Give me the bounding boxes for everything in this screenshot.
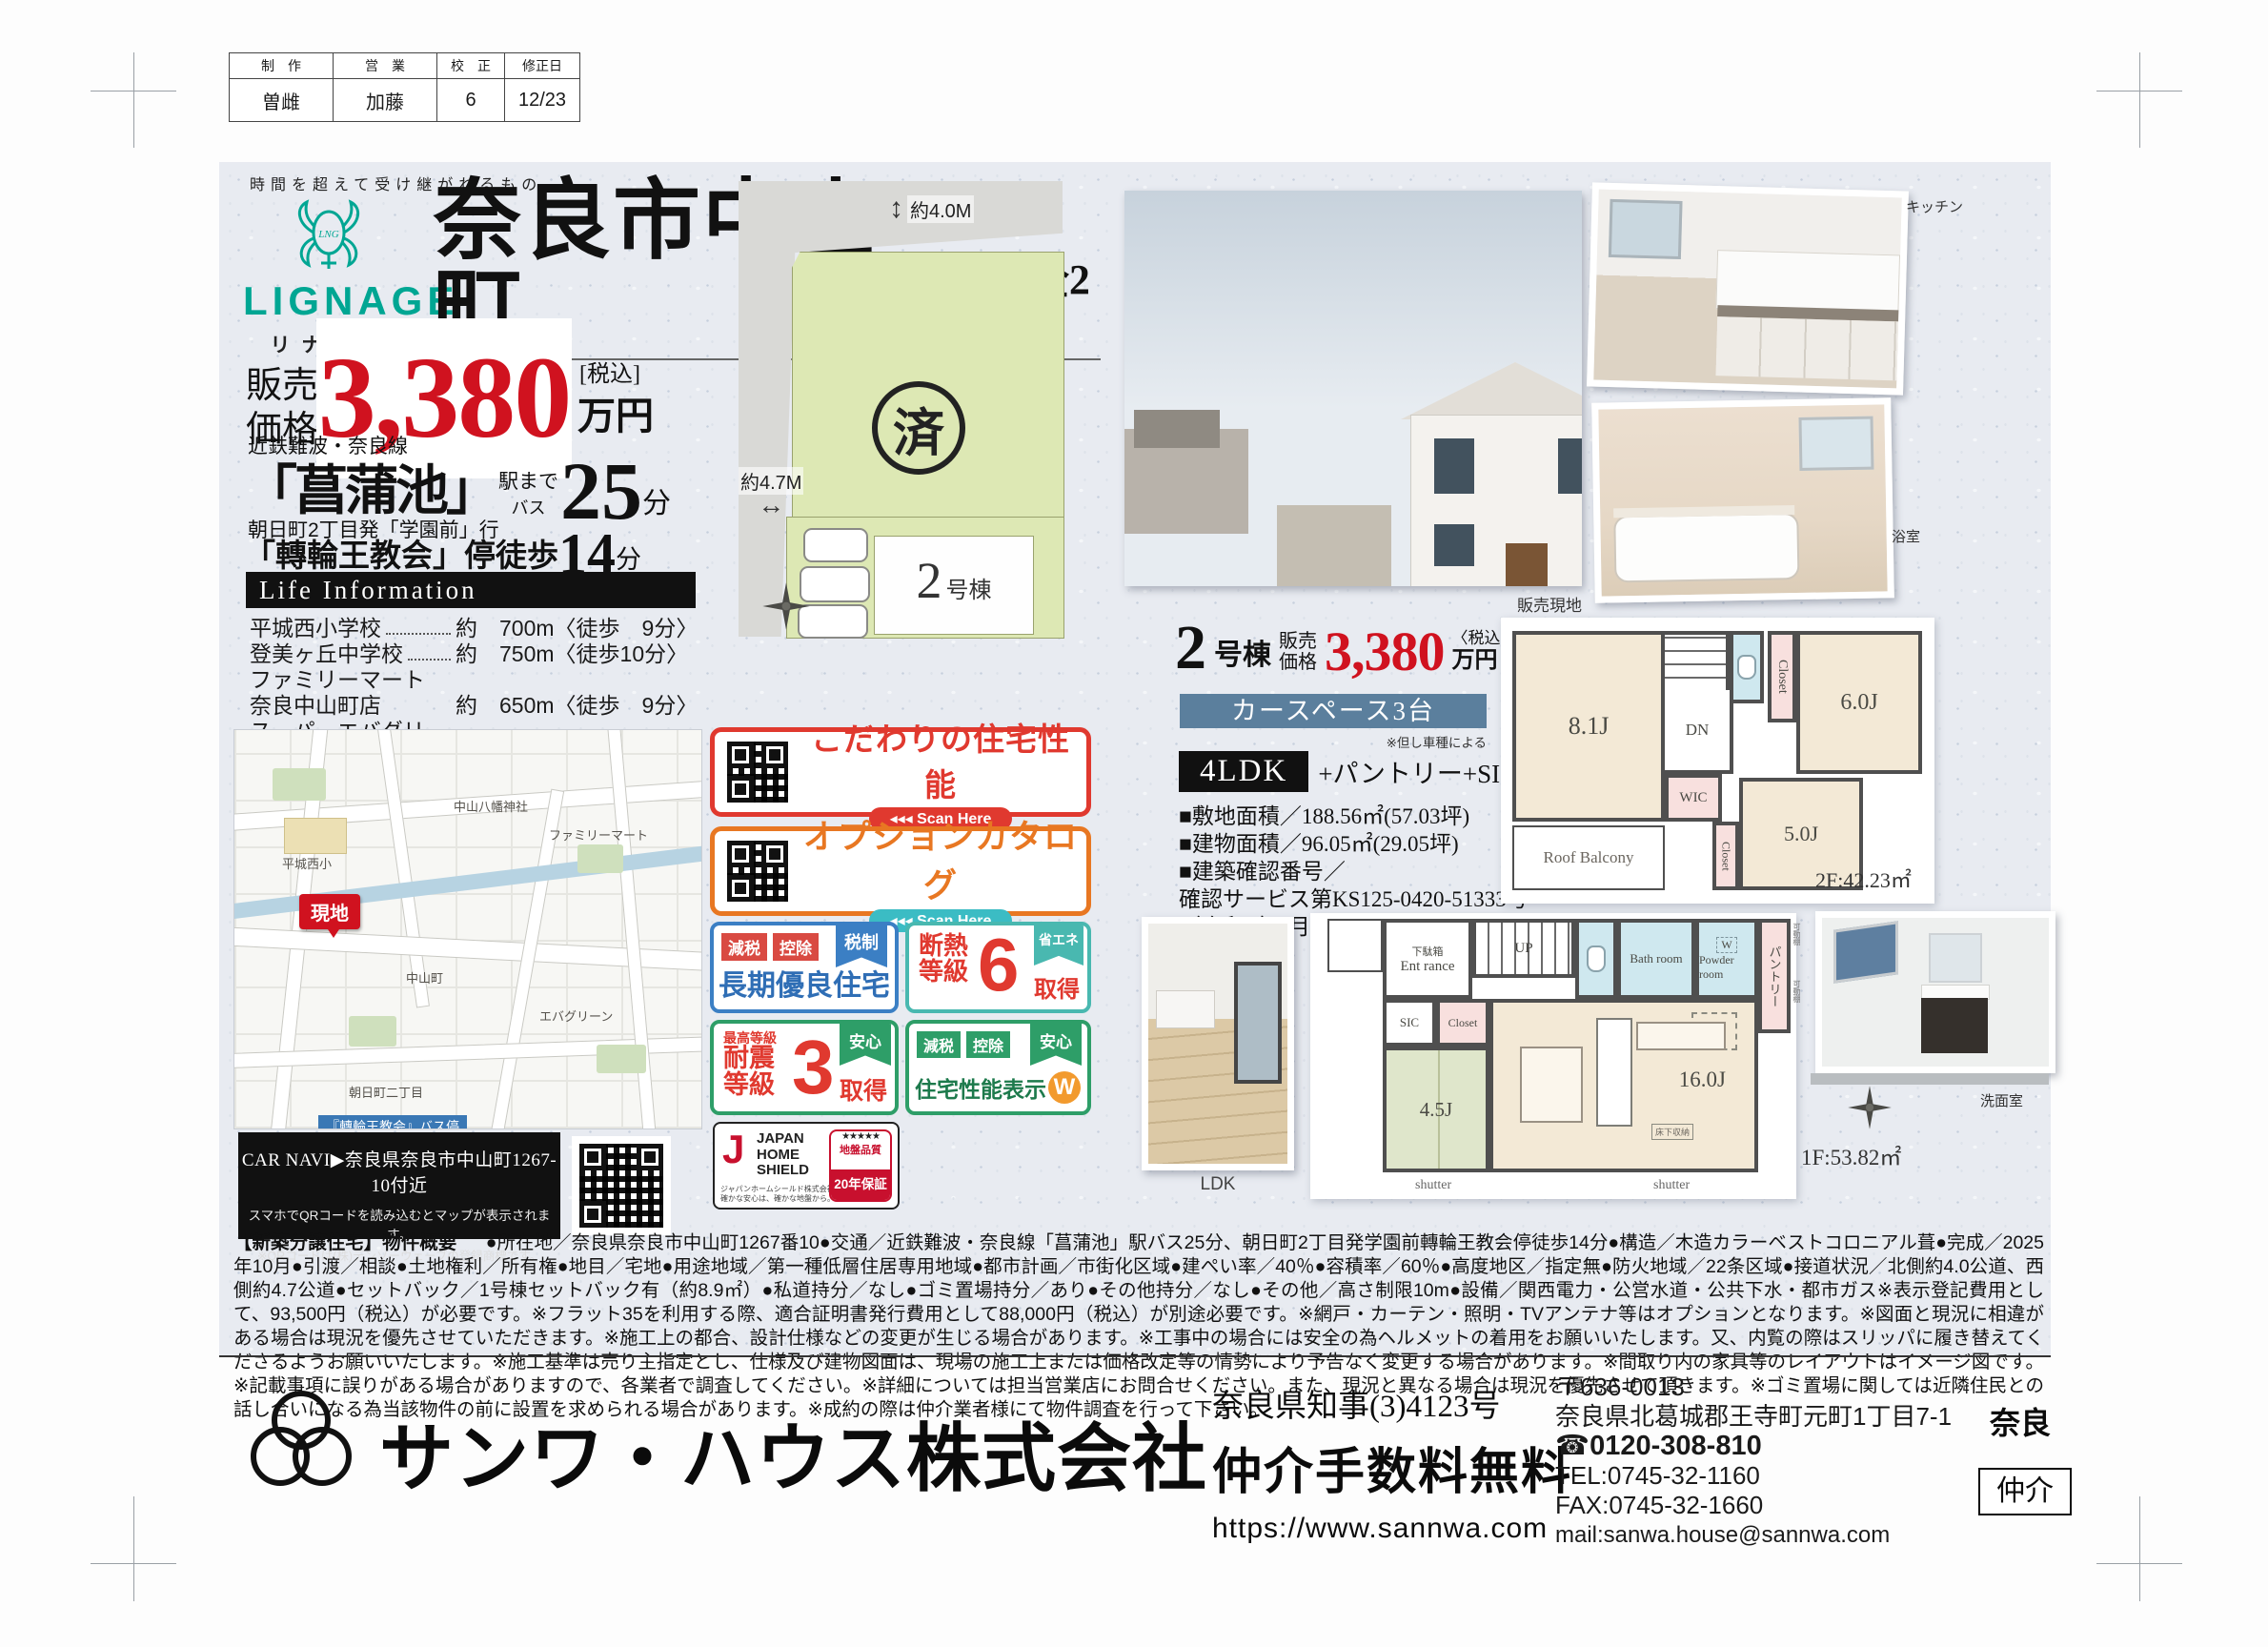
pantry: パントリー (1758, 919, 1791, 1033)
company-name: サンワ・ハウス株式会社 (379, 1399, 1207, 1506)
map-label: 中山八幡神社 (454, 797, 528, 815)
price-unit: 万円 (577, 385, 654, 440)
room-6-0j: 6.0J (1796, 631, 1922, 774)
map-park (597, 1045, 646, 1073)
map-label: ファミリーマート (549, 825, 648, 844)
svg-text:LNG: LNG (317, 229, 338, 240)
sold-mark: 済 (872, 381, 965, 475)
car-icon (803, 528, 868, 562)
dim-top: ↕ 約4.0M (889, 193, 974, 225)
floor-plan-1f: 下駄箱 Ent rance UP Bath room W Powder room… (1310, 913, 1796, 1199)
floor-storage: 床下収納 (1651, 1124, 1693, 1140)
area-1f: 1F:53.82㎡ (1801, 1139, 1901, 1171)
kitchen-counter (1596, 1018, 1632, 1127)
proof-table: 制 作 営 業 校 正 修正日 曽雌 加藤 6 12/23 (229, 52, 580, 122)
map-road (376, 729, 430, 1008)
room-16-0j-ldk: 16.0J R 床下収納 (1489, 999, 1758, 1172)
badge-seinou-hyoji: 減税 控除 安心 住宅性能表示 W (905, 1020, 1091, 1115)
station-name: 「菖蒲池」 (244, 448, 496, 525)
fax-number: FAX:0745-32-1660 (1555, 1491, 1952, 1520)
flyer-page: 制 作 営 業 校 正 修正日 曽雌 加藤 6 12/23 時間を超えて受け継が… (0, 0, 2268, 1647)
roof-balcony: Roof Balcony (1512, 825, 1665, 890)
qr-code (722, 836, 793, 906)
car-space-banner: カースペース3台 (1180, 694, 1487, 728)
map-label: 中山町 (406, 968, 443, 986)
sofa (1636, 1022, 1726, 1050)
stairs-up: UP (1472, 919, 1575, 978)
washroom-photo (1815, 911, 2055, 1073)
bathtub (1613, 513, 1799, 582)
plan-row: 4LDK +パントリー+SIC (1179, 751, 1517, 792)
proof-value: 12/23 (505, 79, 580, 122)
ldk-photo (1142, 917, 1294, 1170)
plan-type-badge: 4LDK (1179, 751, 1308, 792)
w-mark-icon: W (1048, 1071, 1081, 1104)
access-mode: 駅まで バス (498, 466, 558, 519)
list-item: 登美ヶ丘中学校約 750m〈徒歩10分〉 (250, 641, 696, 667)
proof-value: 加藤 (334, 79, 437, 122)
freedial-number: ☎0120-308-810 (1555, 1432, 1952, 1461)
photo-caption: 販売現地 (1463, 592, 1582, 616)
unit-price-label: 販売 価格 (1279, 631, 1317, 673)
floor-plan-2f: 8.1J DN Closet 6.0J WIC Closet 5.0J Roof… (1501, 618, 1934, 904)
stairs (1661, 631, 1730, 694)
fee-free: 仲介手数料無料 (1212, 1432, 1572, 1503)
unit-number: 2 (1175, 621, 1206, 675)
dining-table (1520, 1047, 1583, 1123)
busstop-minutes-unit: 分 (616, 539, 641, 576)
shutter-label: shutter (1653, 1178, 1690, 1193)
site-marker: 現地 (299, 894, 360, 929)
arrow-vertical-icon: ↕ (889, 193, 903, 225)
proof-header: 校 正 (437, 53, 505, 79)
divider-bar (1811, 1073, 2049, 1085)
map-park (349, 1016, 396, 1047)
qr-banner-performance: こだわりの住宅性能 ◂◂◂ Scan Here (710, 727, 1091, 817)
unit-price-amount: 3,380 (1325, 628, 1445, 675)
shutter-label: shutter (1415, 1178, 1451, 1193)
crop-mark (91, 91, 176, 91)
branch-name: 奈良 (1990, 1399, 2051, 1443)
room-4-5j: 4.5J (1383, 1047, 1489, 1172)
closet-2f-2: Closet (1712, 822, 1739, 890)
dim-left: 約4.7M ↔ (739, 467, 803, 516)
crop-mark (2096, 1563, 2182, 1564)
proof-header: 営 業 (334, 53, 437, 79)
map-label: エバグリーン (539, 1006, 613, 1025)
area-2f: 2F:42.23㎡ (1815, 864, 1912, 894)
proof-value: 6 (437, 79, 505, 122)
shelf-label: 可動棚 (1792, 923, 1802, 945)
qr-banner-title: こだわりの住宅性能 (802, 714, 1079, 805)
japan-home-shield-badge: J JAPAN HOME SHIELD ジャパンホームシールド株式会社 確かな安… (713, 1122, 900, 1210)
license-block: 奈良県知事(3)4123号 仲介手数料無料 https://www.sannwa… (1212, 1380, 1572, 1545)
license-number: 奈良県知事(3)4123号 (1212, 1380, 1572, 1426)
life-info-banner: Life Information (246, 572, 696, 608)
map-qr-code (572, 1136, 671, 1235)
badge-dannetsu-6: 断熱 等級 6 省エネ 取得 (905, 922, 1091, 1013)
list-item: 平城西小学校約 700m〈徒歩 9分〉 (250, 616, 696, 641)
crop-mark (2139, 1496, 2140, 1601)
toilet-2f (1730, 631, 1764, 703)
area-map: 平城西小 中山八幡神社 ファミリーマート エバグリーン 中山町 朝日町二丁目 現… (233, 729, 702, 1129)
lignage-crest-icon: LNG (286, 194, 372, 276)
bath-photo (1591, 397, 1894, 602)
qr-code (722, 737, 793, 807)
closet-1f: Closet (1436, 999, 1489, 1047)
role-badge: 仲介 (1978, 1468, 2072, 1515)
crop-mark (133, 52, 134, 148)
footer-divider (219, 1355, 2051, 1357)
site-plan: 済 2 号棟 ↕ 約4.0M 約4.7M ↔ (739, 181, 1063, 637)
map-park (273, 768, 326, 801)
mail-address: mail:sanwa.house@sannwa.com (1555, 1520, 1952, 1550)
jhs-warranty-seal: ★★★★★ 地盤品質 20年保証 (829, 1129, 892, 1202)
photo-caption: 浴室 (1892, 526, 1920, 546)
closet-2f: Closet (1768, 631, 1796, 722)
busstop-map-label: 『轉輪王教会』バス停 (318, 1115, 467, 1129)
arrow-horizontal-icon: ↔ (739, 495, 803, 516)
proof-value: 曽雌 (230, 79, 334, 122)
badge-choki-yuryo: 減税 控除 税制 長期優良住宅 (710, 922, 899, 1013)
company-address: 奈良県北葛城郡王寺町元町1丁目7-1 (1555, 1402, 1952, 1432)
toilet-1f (1575, 919, 1617, 999)
compass-icon (1847, 1085, 1893, 1130)
kitchen-photo (1587, 182, 1909, 395)
photo-caption: キッチン (1906, 196, 1963, 216)
shelf-label: 可動棚 (1792, 980, 1802, 1003)
contact-block: 〒636-0013 奈良県北葛城郡王寺町元町1丁目7-1 ☎0120-308-8… (1555, 1372, 1952, 1550)
site-marker-pointer (326, 926, 341, 938)
unit2-price-row: 2 号棟 販売 価格 3,380 〈税込〉 万円 (1175, 621, 1517, 675)
car-navi-box: CAR NAVI▶奈良県奈良市中山町1267-10付近 スマホでQRコードを読み… (238, 1132, 560, 1239)
hall-dn: DN (1661, 690, 1733, 774)
proof-header: 修正日 (505, 53, 580, 79)
jhs-j-logo: J (722, 1129, 744, 1169)
access-minutes-unit: 分 (642, 479, 671, 521)
badge-taishin-3: 最高等級 耐震 等級 3 安心 取得 (710, 1020, 899, 1115)
exterior-photo (1124, 191, 1582, 586)
crop-mark (91, 1563, 176, 1564)
crop-mark (133, 1496, 134, 1601)
porch (1327, 919, 1383, 972)
map-label: 朝日町二丁目 (349, 1083, 423, 1101)
entrance: 下駄箱 Ent rance (1383, 919, 1472, 999)
unit-suffix: 号棟 (1214, 631, 1271, 673)
price-tax: [税込] (579, 355, 640, 388)
map-park (577, 844, 623, 873)
photo-caption: 洗面室 (1980, 1090, 2023, 1110)
access-minutes: 25 (560, 457, 642, 525)
bath-room: Bath room (1617, 919, 1695, 999)
plan-plus: +パントリー+SIC (1318, 753, 1517, 790)
access-station-row: 「菖蒲池」 駅まで バス 25 分 (244, 448, 671, 525)
room-8-1j: 8.1J (1512, 631, 1665, 822)
company-url: https://www.sannwa.com (1212, 1513, 1572, 1545)
crop-mark (2096, 91, 2182, 91)
car-navi-address: CAR NAVI▶奈良県奈良市中山町1267-10付近 (238, 1146, 560, 1197)
lot2-building: 2 号棟 (874, 536, 1034, 635)
map-school-block (284, 818, 347, 854)
legal-heading: 【新築分譲住宅】物件概要 (233, 1232, 456, 1253)
brand-logo: LIGNAGE (243, 278, 453, 324)
crop-mark (2139, 52, 2140, 148)
sic: SIC (1383, 999, 1436, 1047)
wic: WIC (1665, 774, 1722, 822)
map-label: 平城西小 (282, 854, 332, 872)
powder-room: W Powder room (1695, 919, 1758, 999)
lot2-number: 2 (917, 558, 942, 604)
tel-number: TEL:0745-32-1160 (1555, 1461, 1952, 1491)
lot2-suffix: 号棟 (946, 571, 992, 604)
compass-icon (761, 581, 811, 631)
car-space-note: ※但し車種による (1325, 732, 1487, 751)
house-door (1506, 543, 1548, 586)
proof-header: 制 作 (230, 53, 334, 79)
sannwa-logo-icon (240, 1384, 362, 1498)
list-item: ファミリーマート奈良中山町店約 650m〈徒歩 9分〉 (250, 667, 696, 719)
busstop-name: 「轉輪王教会」停徒歩 (244, 530, 558, 576)
zip-code: 〒636-0013 (1555, 1372, 1952, 1402)
qr-banner-options: オプションカタログ ◂◂◂ Scan Here (710, 826, 1091, 916)
qr-banner-title: オプションカタログ (802, 810, 1079, 907)
photo-caption: LDK (1142, 1174, 1294, 1195)
